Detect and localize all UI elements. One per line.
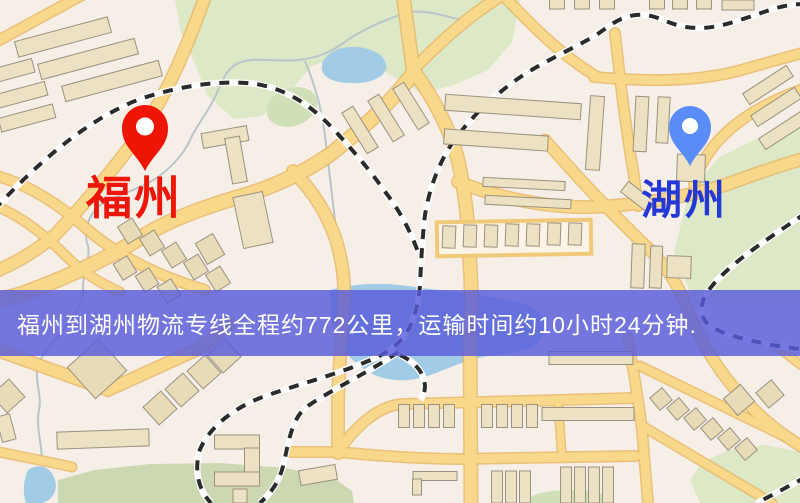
map-canvas[interactable]: 福州 湖州 福州到湖州物流专线全程约772公里，运输时间约10小时24分钟. (0, 0, 800, 503)
route-info-banner: 福州到湖州物流专线全程约772公里，运输时间约10小时24分钟. (0, 290, 800, 356)
destination-label: 湖州 (641, 180, 727, 221)
map-graphic (0, 0, 800, 503)
route-info-text: 福州到湖州物流专线全程约772公里，运输时间约10小时24分钟. (0, 306, 697, 340)
origin-label: 福州 (86, 176, 182, 222)
